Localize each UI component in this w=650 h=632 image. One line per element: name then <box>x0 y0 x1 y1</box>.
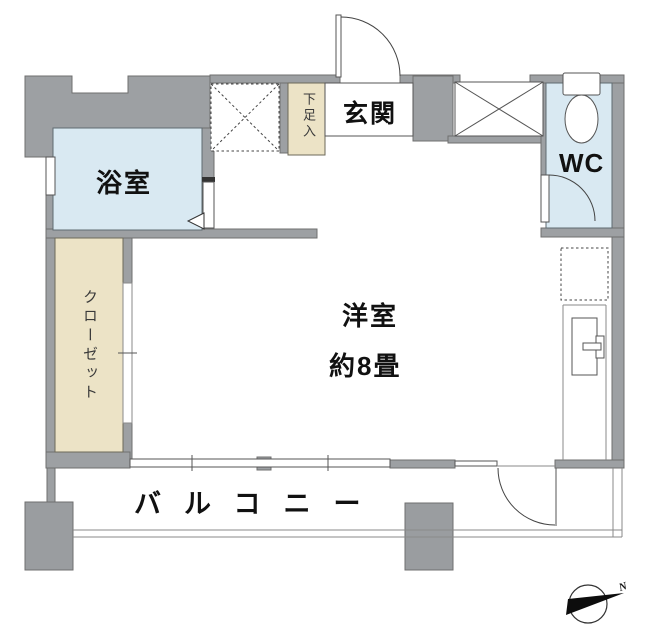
wall-left-lower <box>46 238 55 452</box>
wall-right <box>612 83 624 468</box>
shoe-box-label: 下足入 <box>299 92 318 140</box>
refrigerator-space <box>561 248 608 300</box>
entrance-door <box>336 15 400 77</box>
utility-column <box>563 305 606 460</box>
closet-label: クローゼット <box>79 289 100 403</box>
room-label: 洋室 <box>342 296 398 333</box>
shaft-solid <box>455 82 543 136</box>
wall-bottom-seg-1 <box>390 460 455 468</box>
toilet-icon <box>563 73 600 143</box>
shaft-dashed <box>211 84 279 151</box>
balcony-door <box>497 466 556 526</box>
wall-bottom-seg-2 <box>555 460 624 468</box>
compass-icon <box>566 585 624 623</box>
wall-shoebox-left <box>280 83 288 153</box>
genkan-label: 玄関 <box>343 94 397 130</box>
wall-closet-bottom <box>46 452 130 468</box>
wc-label: WC <box>559 148 604 179</box>
wall-wc-bottom <box>541 228 624 237</box>
wall-balcony-left-arm <box>47 468 55 502</box>
wall-genkan-right <box>413 76 453 141</box>
wall-closet-right-upper <box>123 238 132 283</box>
bath-label: 浴室 <box>96 163 152 200</box>
floor-plan: 浴室 玄関 WC 洋室 約8畳 クローゼット 下足入 バルコニー N <box>0 0 650 632</box>
wall-under-shaft <box>448 136 549 143</box>
bath-window <box>46 157 55 195</box>
balcony-label: バルコニー <box>134 482 383 521</box>
wall-top-band-1 <box>210 75 340 83</box>
room-size-label: 約8畳 <box>329 346 401 383</box>
pillar-left <box>25 502 73 570</box>
